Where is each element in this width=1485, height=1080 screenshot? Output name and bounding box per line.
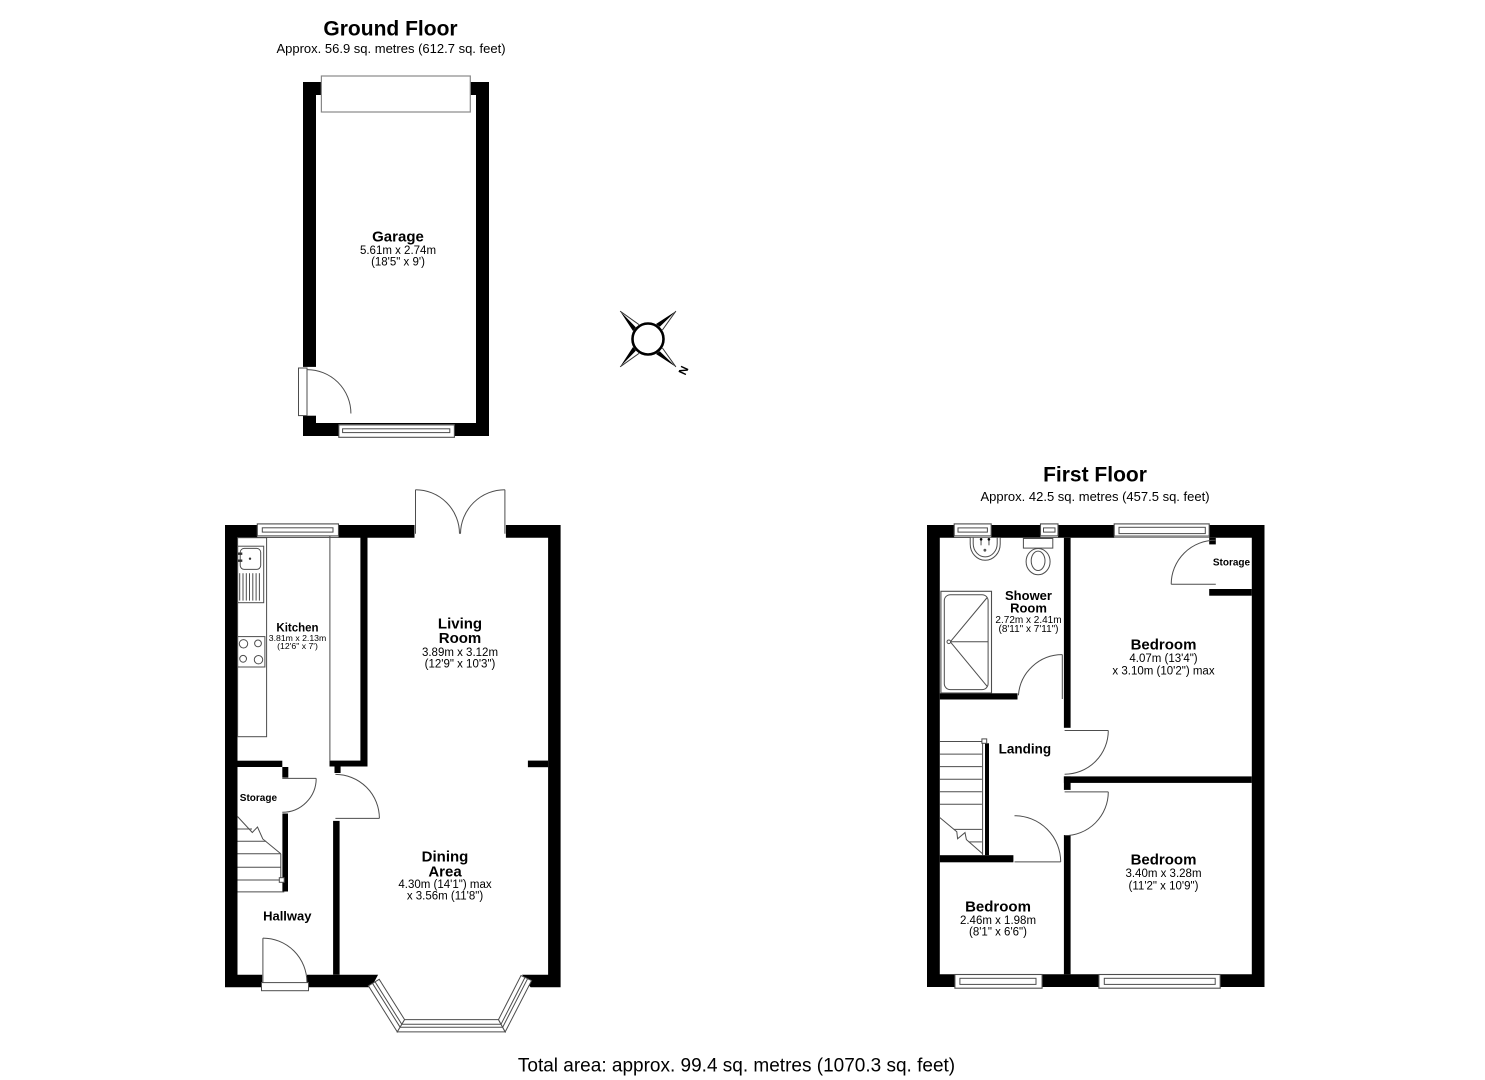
svg-text:Hallway: Hallway — [263, 909, 312, 924]
svg-text:(11'2" x 10'9"): (11'2" x 10'9") — [1129, 881, 1199, 893]
svg-text:3.89m x 3.12m: 3.89m x 3.12m — [422, 647, 498, 659]
svg-text:Approx. 42.5 sq. metres (457.5: Approx. 42.5 sq. metres (457.5 sq. feet) — [980, 489, 1209, 504]
svg-text:Approx. 56.9 sq. metres (612.7: Approx. 56.9 sq. metres (612.7 sq. feet) — [276, 41, 505, 56]
svg-text:First Floor: First Floor — [1043, 463, 1147, 486]
svg-text:4.30m (14'1") max: 4.30m (14'1") max — [398, 879, 491, 891]
svg-text:(8'1" x 6'6"): (8'1" x 6'6") — [969, 927, 1027, 939]
svg-text:4.07m (13'4"): 4.07m (13'4") — [1129, 653, 1197, 665]
svg-text:Bedroom: Bedroom — [965, 899, 1031, 916]
svg-text:Area: Area — [428, 863, 462, 880]
svg-text:Bedroom: Bedroom — [1131, 852, 1197, 869]
svg-text:Storage: Storage — [1213, 558, 1251, 569]
svg-text:x 3.10m (10'2") max: x 3.10m (10'2") max — [1112, 665, 1214, 677]
svg-text:(8'11" x 7'11"): (8'11" x 7'11") — [998, 624, 1058, 635]
svg-text:Garage: Garage — [372, 228, 424, 245]
svg-text:Room: Room — [1010, 601, 1047, 616]
svg-text:Storage: Storage — [240, 793, 278, 804]
svg-text:2.46m x 1.98m: 2.46m x 1.98m — [960, 915, 1036, 927]
svg-text:3.40m x 3.28m: 3.40m x 3.28m — [1125, 868, 1201, 880]
svg-text:Landing: Landing — [999, 742, 1052, 757]
svg-text:Bedroom: Bedroom — [1131, 637, 1197, 654]
svg-text:Total area: approx. 99.4 sq. m: Total area: approx. 99.4 sq. metres (107… — [518, 1056, 955, 1077]
svg-text:x 3.56m (11'8"): x 3.56m (11'8") — [407, 891, 484, 903]
svg-text:5.61m x 2.74m: 5.61m x 2.74m — [360, 245, 436, 257]
svg-text:(18'5" x 9'): (18'5" x 9') — [371, 257, 425, 269]
svg-text:(12'9" x 10'3"): (12'9" x 10'3") — [425, 658, 496, 670]
svg-text:Room: Room — [439, 630, 482, 647]
svg-text:Ground Floor: Ground Floor — [323, 18, 457, 41]
svg-text:(12'6" x 7'): (12'6" x 7') — [277, 641, 318, 651]
